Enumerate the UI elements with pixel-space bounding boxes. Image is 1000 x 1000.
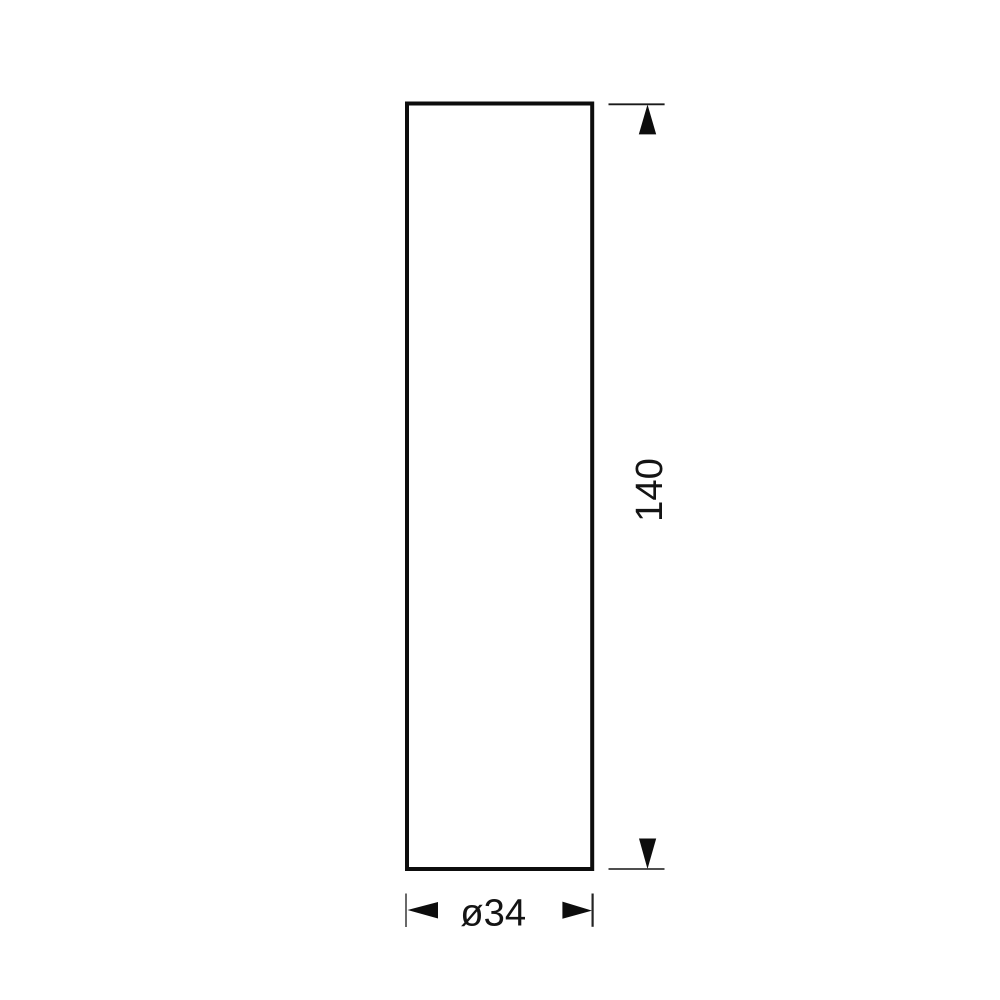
svg-text:140: 140 (628, 458, 671, 522)
svg-text:ø34: ø34 (460, 892, 526, 935)
